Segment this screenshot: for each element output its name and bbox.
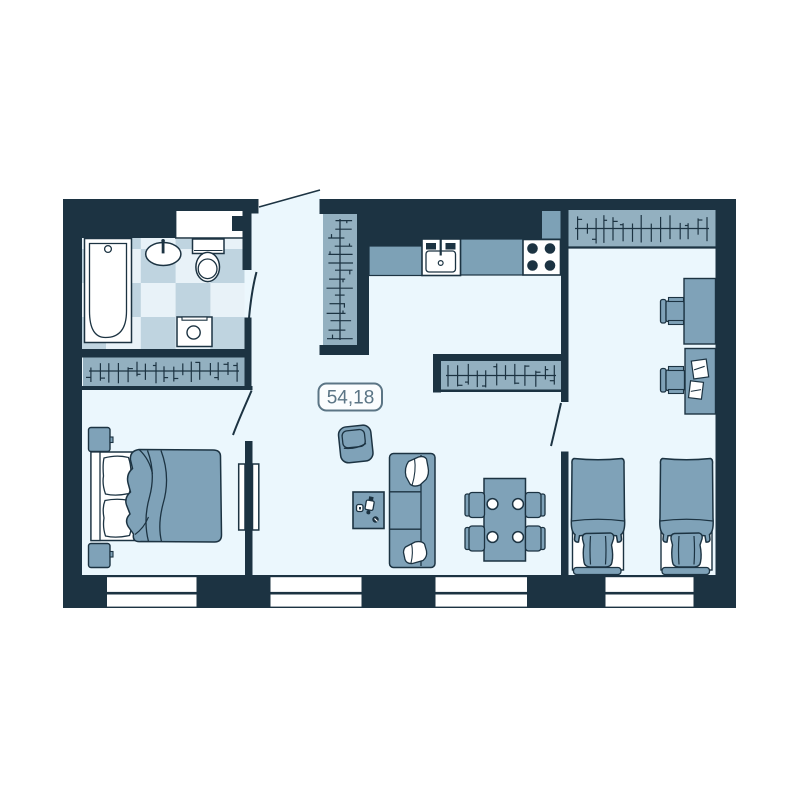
svg-text:54,18: 54,18 (327, 388, 375, 409)
